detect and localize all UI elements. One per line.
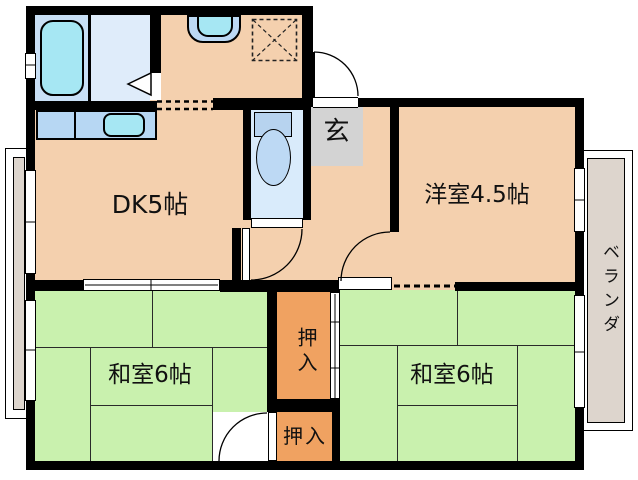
- wall: [150, 15, 161, 73]
- dk-window: [25, 170, 36, 274]
- room-label-closet-lower: 押入: [277, 425, 333, 448]
- dk-tatami-sliding-door: [83, 279, 220, 291]
- counter-sink: [103, 113, 145, 137]
- wall: [267, 292, 277, 399]
- bathtub: [40, 20, 84, 96]
- room-label-dk: DK5帖: [60, 191, 240, 220]
- wall: [243, 108, 251, 220]
- closet-lower-door-leaf: [268, 412, 277, 461]
- left-balcony-floor: [13, 157, 25, 410]
- toilet-bowl: [256, 129, 291, 186]
- counter-divider: [74, 111, 76, 139]
- tatami-line: [152, 290, 153, 347]
- tatami-left-window: [25, 300, 36, 401]
- wall: [332, 412, 340, 461]
- wall: [232, 228, 241, 284]
- wall: [26, 101, 157, 110]
- kitchen-sink: [197, 15, 233, 37]
- wall: [26, 6, 310, 15]
- room-label-western: 洋室4.5帖: [387, 182, 567, 208]
- room-label-tatami-left: 和室6帖: [60, 362, 240, 388]
- wall: [390, 107, 399, 232]
- wall: [455, 282, 575, 291]
- room-label-tatami-right: 和室6帖: [362, 362, 542, 388]
- entrance-doorway-sill: [313, 97, 358, 108]
- tatami-line: [35, 347, 267, 348]
- entrance-door-leaf: [313, 52, 315, 97]
- tatami-line: [90, 405, 212, 406]
- wall: [26, 461, 584, 470]
- western-room-door-opening: [338, 277, 392, 290]
- room-label-closet-upper: 押入: [291, 309, 317, 395]
- wall: [213, 98, 311, 110]
- wall: [575, 98, 584, 470]
- tatami-line: [340, 345, 575, 346]
- wall: [358, 98, 584, 107]
- room-washroom-floor: [91, 15, 150, 101]
- tatami-right-window: [574, 295, 585, 408]
- washroom-door-gap: [150, 73, 161, 100]
- tatami-line: [397, 405, 517, 406]
- closet-upper-sliding-door: [330, 292, 340, 399]
- toilet-door-leaf: [251, 218, 303, 228]
- western-room-window: [574, 168, 585, 232]
- room-label-genkan: 玄: [310, 118, 363, 148]
- toilet-door-frame: [242, 228, 250, 281]
- wall: [88, 15, 91, 101]
- wall: [35, 280, 83, 291]
- wall: [267, 399, 340, 412]
- wall: [220, 280, 340, 292]
- entrance-door-arc: [314, 52, 358, 96]
- bathroom-window: [25, 53, 36, 79]
- floor-plan: DK5帖 洋室4.5帖 和室6帖 和室6帖 玄 押入 押入 ベランダ: [0, 0, 638, 480]
- tatami-line: [457, 290, 458, 345]
- room-label-veranda: ベランダ: [594, 236, 618, 346]
- wall: [302, 6, 313, 107]
